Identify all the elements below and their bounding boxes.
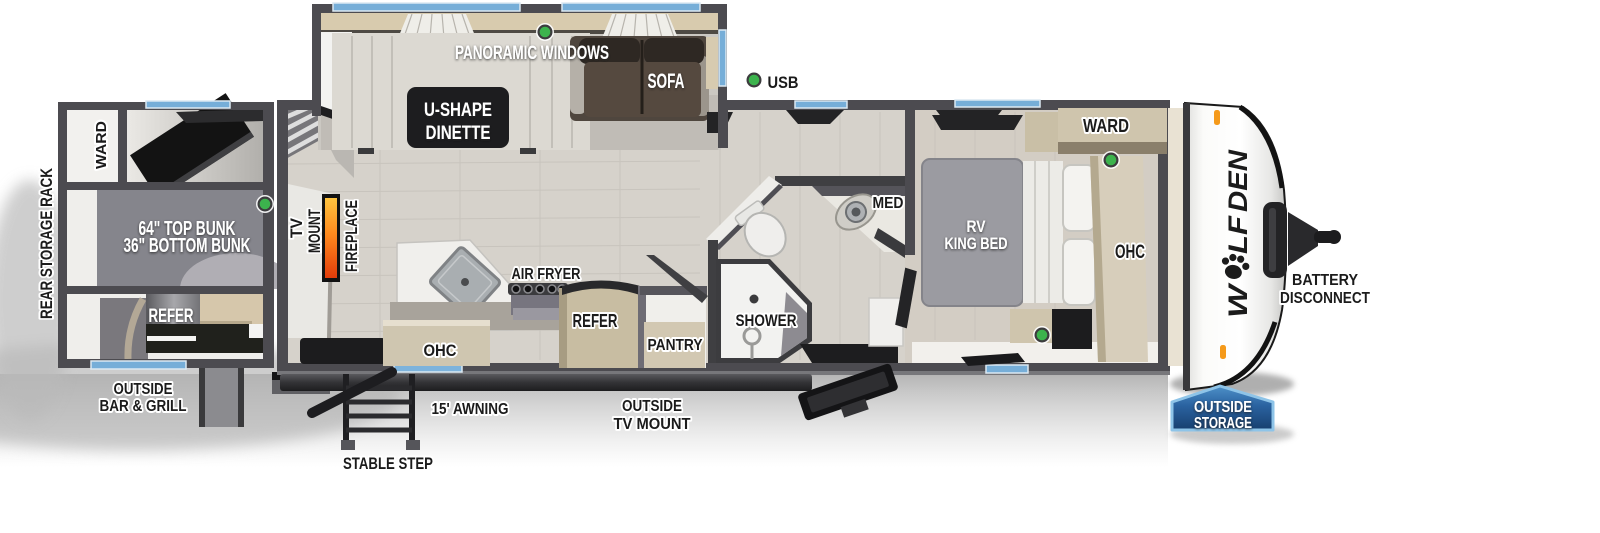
svg-text:KING BED: KING BED	[945, 234, 1008, 253]
svg-text:W: W	[1223, 282, 1253, 318]
svg-text:OHC: OHC	[1115, 242, 1145, 263]
svg-text:OUTSIDE: OUTSIDE	[1194, 399, 1252, 416]
svg-text:LF: LF	[1223, 214, 1253, 254]
svg-text:SOFA: SOFA	[648, 70, 685, 93]
svg-text:OUTSIDE: OUTSIDE	[114, 381, 173, 398]
svg-text:STABLE STEP: STABLE STEP	[343, 454, 433, 473]
svg-text:MED: MED	[873, 195, 904, 212]
svg-text:REAR STORAGE RACK: REAR STORAGE RACK	[37, 167, 56, 319]
svg-text:STORAGE: STORAGE	[1194, 415, 1252, 432]
svg-text:FIREPLACE: FIREPLACE	[342, 200, 361, 272]
svg-text:PANTRY: PANTRY	[648, 337, 703, 354]
svg-text:REFER: REFER	[149, 306, 194, 327]
svg-text:TV: TV	[287, 217, 306, 238]
svg-text:PANORAMIC WINDOWS: PANORAMIC WINDOWS	[455, 43, 609, 64]
svg-text:TV MOUNT: TV MOUNT	[614, 416, 691, 433]
svg-text:WARD: WARD	[1083, 116, 1129, 136]
svg-text:DISCONNECT: DISCONNECT	[1280, 290, 1370, 307]
svg-text:BAR & GRILL: BAR & GRILL	[100, 398, 187, 415]
svg-text:WARD: WARD	[93, 121, 110, 169]
svg-text:SHOWER: SHOWER	[736, 311, 797, 330]
svg-text:U-SHAPE: U-SHAPE	[424, 100, 492, 121]
svg-text:36" BOTTOM BUNK: 36" BOTTOM BUNK	[124, 235, 251, 257]
svg-text:OUTSIDE: OUTSIDE	[622, 398, 682, 415]
svg-text:AIR FRYER: AIR FRYER	[512, 266, 581, 283]
svg-text:15' AWNING: 15' AWNING	[432, 401, 509, 418]
svg-text:BATTERY: BATTERY	[1292, 272, 1358, 289]
svg-text:DINETTE: DINETTE	[426, 123, 491, 144]
svg-text:REFER: REFER	[573, 311, 618, 331]
svg-text:USB: USB	[768, 73, 799, 92]
svg-text:MOUNT: MOUNT	[305, 209, 324, 253]
svg-text:DEN: DEN	[1223, 149, 1253, 212]
svg-text:OHC: OHC	[424, 341, 457, 360]
